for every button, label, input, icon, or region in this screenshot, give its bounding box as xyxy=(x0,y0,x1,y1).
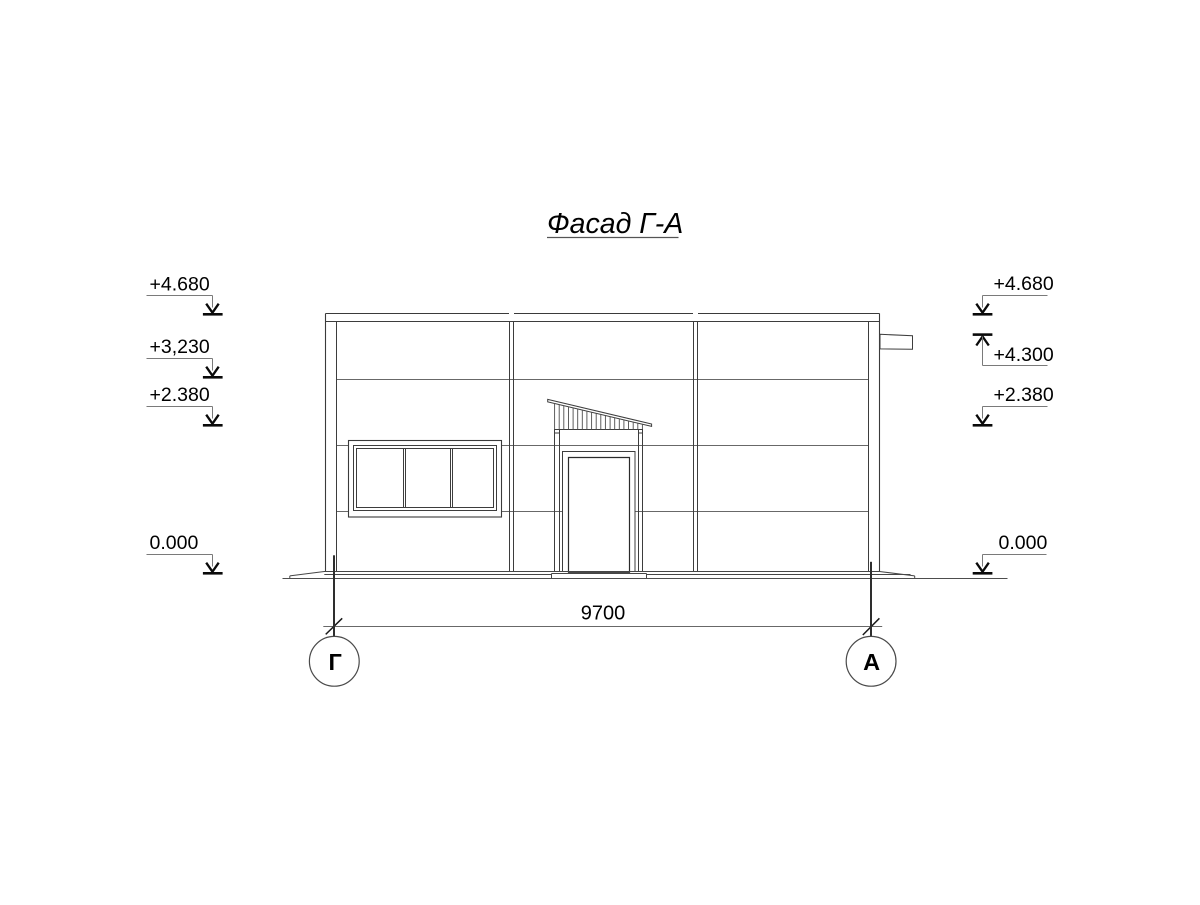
svg-text:+2.380: +2.380 xyxy=(994,384,1054,406)
svg-text:+3,230: +3,230 xyxy=(150,336,210,358)
svg-text:А: А xyxy=(863,649,880,675)
svg-text:0.000: 0.000 xyxy=(999,532,1048,554)
svg-text:+4.300: +4.300 xyxy=(994,344,1054,366)
svg-text:Г: Г xyxy=(329,649,342,675)
svg-text:+2.380: +2.380 xyxy=(150,384,210,406)
svg-text:Фасад Г-А: Фасад Г-А xyxy=(547,208,683,240)
svg-text:0.000: 0.000 xyxy=(150,532,199,554)
svg-text:9700: 9700 xyxy=(581,603,626,625)
svg-text:+4.680: +4.680 xyxy=(994,273,1054,295)
svg-text:+4.680: +4.680 xyxy=(150,273,210,295)
